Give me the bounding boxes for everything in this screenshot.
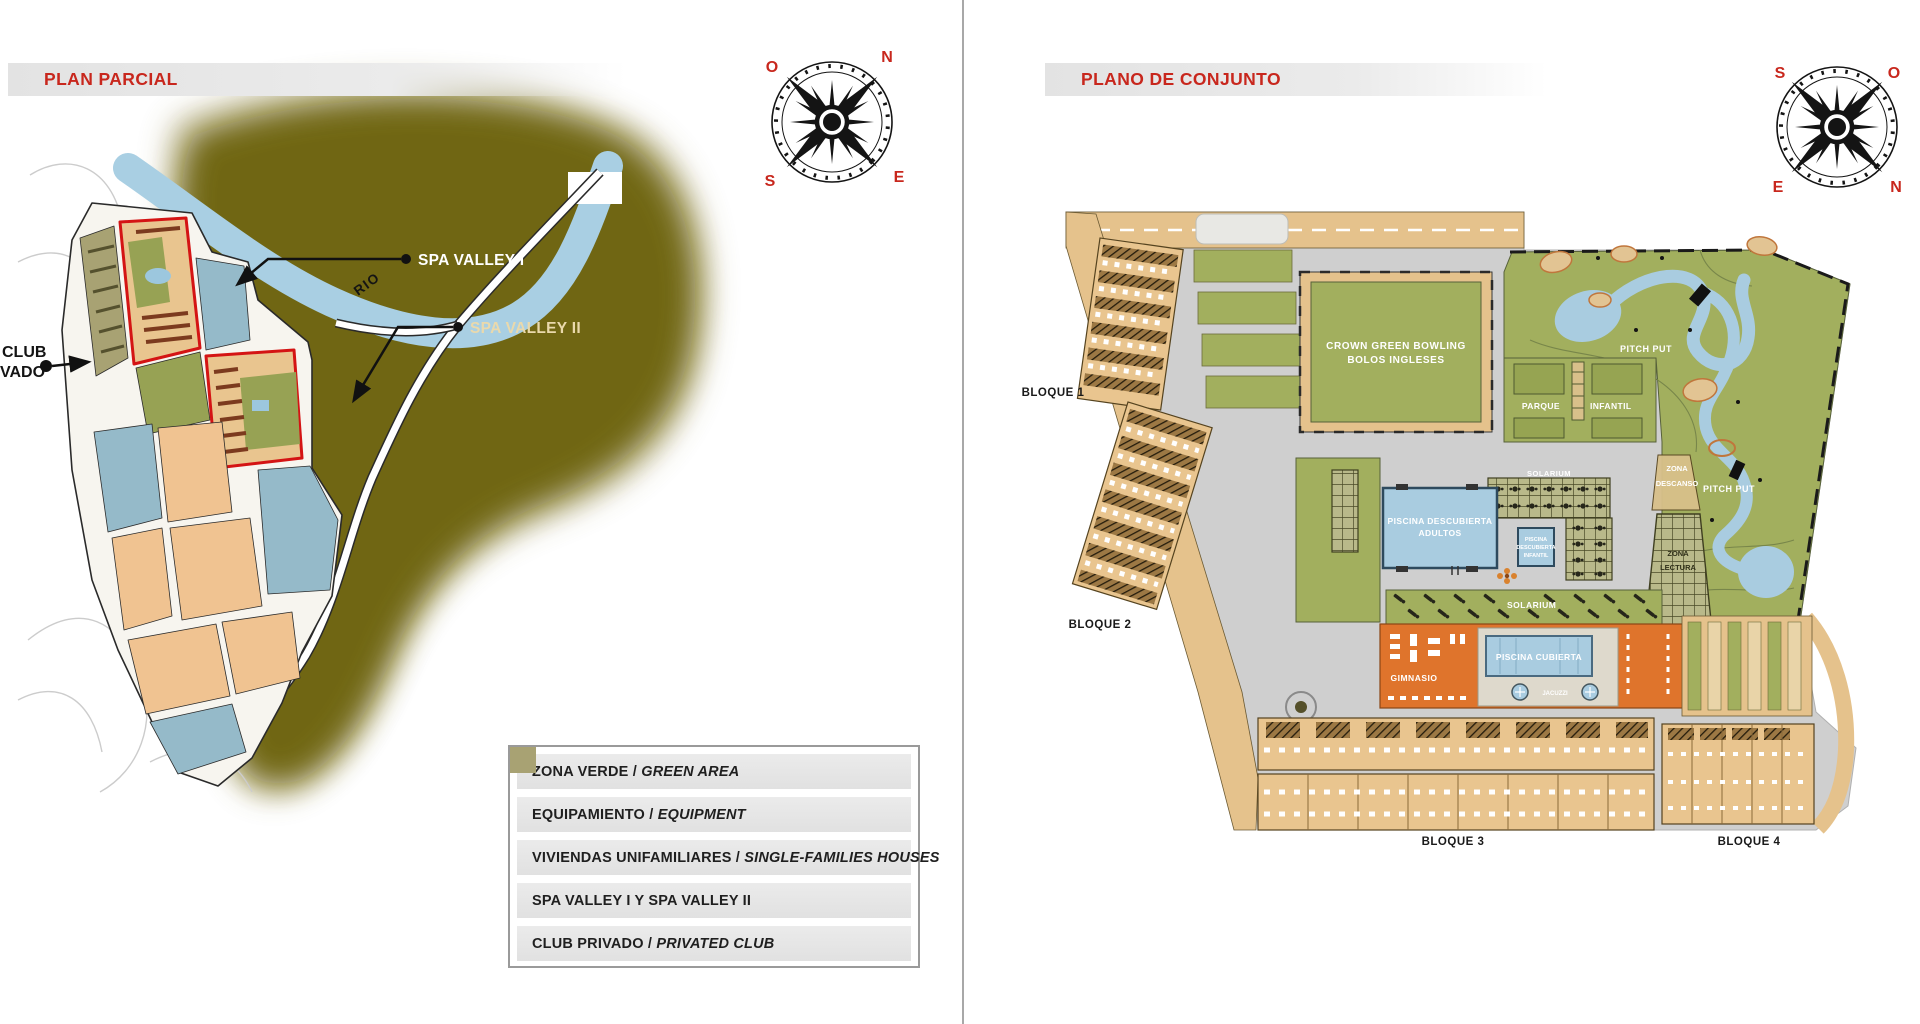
zona-descanso-label-line2: DESCANSO — [1656, 479, 1699, 488]
compass-left-o: O — [766, 59, 778, 76]
legend-row-viviendas: VIVIENDAS UNIFAMILIARES / SINGLE-FAMILIE… — [517, 840, 911, 875]
piscina-infantil-label-line3: INFANTIL — [1524, 553, 1549, 559]
zona-lectura-label-line1: ZONA — [1667, 549, 1689, 558]
bowling-label-line2: BOLOS INGLESES — [1347, 355, 1444, 366]
gimnasio-label: GIMNASIO — [1391, 673, 1438, 683]
piscina-adultos: PISCINA DESCUBIERTA ADULTOS — [1383, 484, 1497, 575]
compass-right-e: E — [1773, 179, 1784, 196]
compass-left-e: E — [894, 169, 905, 186]
plans-canvas: RIO SPA VALLEY I SPA VALLEY II CLUB VADO… — [0, 0, 1920, 1024]
piscina-infantil-label-line2: DESCUBIERTA — [1516, 545, 1555, 551]
piscina-infantil-label-line1: PISCINA — [1525, 537, 1547, 543]
legend: ZONA VERDE / GREEN AREA EQUIPAMIENTO / E… — [508, 745, 920, 968]
pergola-column — [1332, 470, 1358, 552]
legend-row-zona-verde: ZONA VERDE / GREEN AREA — [517, 754, 911, 789]
spa-valley-1-label: SPA VALLEY I — [418, 252, 524, 269]
bowling-green: CROWN GREEN BOWLING BOLOS INGLESES — [1300, 272, 1492, 432]
parque-infantil: PARQUE INFANTIL — [1504, 358, 1656, 442]
club-privado-swatch — [510, 747, 536, 773]
piscina-cubierta-label: PISCINA CUBIERTA — [1496, 652, 1582, 662]
pitch-put-label-lower: PITCH PUT — [1703, 484, 1755, 494]
plano-de-conjunto-map: CROWN GREEN BOWLING BOLOS INGLESES — [1022, 36, 1920, 848]
piscina-adultos-label-line1: PISCINA DESCUBIERTA — [1388, 516, 1493, 526]
legend-label: VIVIENDAS UNIFAMILIARES / SINGLE-FAMILIE… — [532, 850, 940, 866]
legend-row-club-privado: CLUB PRIVADO / PRIVATED CLUB — [517, 926, 911, 961]
brochure-spread: RIO SPA VALLEY I SPA VALLEY II CLUB VADO… — [0, 0, 1920, 1024]
piscina-adultos-label-line2: ADULTOS — [1418, 528, 1461, 538]
legend-row-spa-valley: SPA VALLEY I Y SPA VALLEY II — [517, 883, 911, 918]
equipamiento-parcel-north — [196, 258, 250, 350]
compass-left-s: S — [765, 173, 776, 190]
bloque-2-label: BLOQUE 2 — [1069, 619, 1132, 631]
solarium-strip: SOLARIUM — [1386, 590, 1662, 624]
compass-right-s: S — [1775, 65, 1786, 82]
bloque-4-building — [1662, 724, 1814, 824]
zona-lectura-label-line2: LECTURA — [1660, 563, 1696, 572]
plan-parcial-map: RIO SPA VALLEY I SPA VALLEY II CLUB VADO… — [0, 31, 923, 796]
right-page-title-bar: PLANO DE CONJUNTO — [1045, 63, 1547, 96]
gym-pool-building: GIMNASIO PISCINA CUBIERTA JACUZZI — [1380, 624, 1700, 708]
bowling-label-line1: CROWN GREEN BOWLING — [1326, 341, 1466, 352]
compass-right-o: O — [1888, 65, 1900, 82]
parque-infantil-label-line1: PARQUE — [1522, 401, 1560, 411]
club-privado-label-line2: VADO — [0, 364, 45, 381]
compass-right: S O E N — [1746, 36, 1920, 217]
bloque-3-building — [1258, 718, 1654, 830]
left-page-title-bar: PLAN PARCIAL — [8, 63, 626, 96]
compass-left: N O E S — [741, 31, 922, 212]
right-page-title: PLANO DE CONJUNTO — [1081, 69, 1281, 90]
legend-label: ZONA VERDE / GREEN AREA — [532, 764, 739, 780]
piscina-infantil: PISCINA DESCUBIERTA INFANTIL — [1516, 528, 1555, 566]
jacuzzi-label: JACUZZI — [1542, 691, 1568, 697]
solarium-strip-label: SOLARIUM — [1507, 600, 1556, 610]
entrance-structure — [1196, 214, 1288, 244]
left-page-title: PLAN PARCIAL — [44, 69, 178, 90]
legend-label: CLUB PRIVADO / PRIVATED CLUB — [532, 936, 774, 952]
bloque-1-label: BLOQUE 1 — [1022, 387, 1085, 399]
bloque-4-label: BLOQUE 4 — [1718, 836, 1781, 848]
legend-row-equipamiento: EQUIPAMIENTO / EQUIPMENT — [517, 797, 911, 832]
compass-right-n: N — [1890, 179, 1902, 196]
legend-label: EQUIPAMIENTO / EQUIPMENT — [532, 807, 746, 823]
solarium-terrace-label: SOLARIUM — [1527, 469, 1571, 478]
viviendas-parcel-1 — [158, 422, 232, 522]
garden-strips-east — [1682, 616, 1812, 716]
compass-left-n: N — [881, 49, 893, 66]
bloque-3-label: BLOQUE 3 — [1422, 836, 1485, 848]
parque-infantil-label-line2: INFANTIL — [1590, 401, 1631, 411]
zona-descanso-label-line1: ZONA — [1666, 464, 1688, 473]
viviendas-parcel-2 — [170, 518, 262, 620]
club-privado-label-line1: CLUB — [2, 344, 46, 361]
pitch-put-label-upper: PITCH PUT — [1620, 344, 1672, 354]
spa-valley-2-label: SPA VALLEY II — [470, 320, 581, 337]
legend-label: SPA VALLEY I Y SPA VALLEY II — [532, 893, 751, 909]
stream-pond-lower — [1738, 546, 1794, 598]
